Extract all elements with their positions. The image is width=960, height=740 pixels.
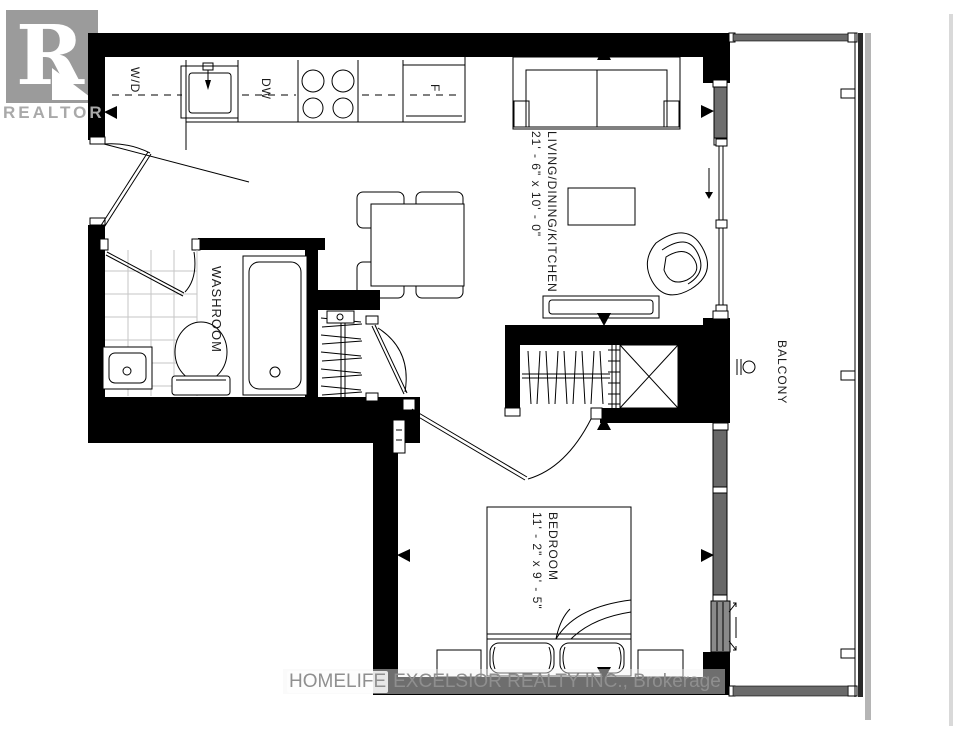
room-dimensions: 11' - 2" x 9' - 5" [529, 512, 545, 610]
balcony-bottom-rail [733, 686, 848, 696]
bathroom-sink [103, 347, 152, 389]
fridge [403, 65, 465, 122]
balcony-top-rail [733, 34, 848, 41]
floor-plan-image: R [0, 0, 960, 740]
room-name: BEDROOM [545, 512, 561, 610]
sofa [513, 57, 680, 129]
living-room-label: LIVING/DINING/KITCHEN 21' - 6" x 10' - 0… [528, 131, 560, 293]
entry-door [100, 144, 249, 229]
slide-direction-arrow-icon [705, 168, 713, 199]
dishwasher-label: DW [259, 78, 273, 100]
dining-set [357, 192, 464, 298]
bedroom-window-wall [713, 430, 727, 487]
washer-dryer-label: W/D [128, 67, 142, 93]
plumbing-line [608, 345, 620, 408]
mechanical-shaft [608, 345, 678, 408]
bedroom-closet [522, 351, 610, 404]
bedroom-window-wall [713, 493, 727, 595]
washroom-fixtures [103, 256, 307, 395]
brokerage-name-rest: EXCELSIOR REALTY INC., Brokerage [393, 671, 721, 693]
balcony-sliding-door [714, 87, 727, 138]
hose-bib-icon [737, 359, 755, 375]
kitchen [112, 57, 465, 150]
washroom-door [106, 252, 195, 296]
room-dimensions: 21' - 6" x 10' - 0" [528, 131, 544, 293]
linen-closet [321, 311, 407, 400]
balcony-right-rail [858, 33, 863, 697]
fridge-label: F [428, 84, 442, 92]
stove-burners [302, 70, 354, 118]
rail-bracket [841, 89, 855, 658]
washroom-label: WASHROOM [209, 266, 224, 353]
lounge-chair [647, 233, 707, 295]
coffee-table [568, 188, 635, 225]
realtor-wordmark: REALTOR [3, 103, 123, 123]
brokerage-watermark: HOMELIFE EXCELSIOR REALTY INC., Brokerag… [283, 669, 725, 694]
floor-plan-drawing [0, 0, 960, 740]
brokerage-name-prefix: HOMELIFE [287, 671, 388, 693]
room-name: LIVING/DINING/KITCHEN [544, 131, 560, 293]
balcony-label: BALCONY [775, 340, 789, 404]
balcony-structure [733, 33, 871, 720]
bedroom-label: BEDROOM 11' - 2" x 9' - 5" [529, 512, 561, 610]
bathtub [243, 256, 307, 395]
bedroom-door [410, 409, 591, 480]
balcony-rail-shadow [865, 33, 871, 720]
kitchen-sink [181, 63, 238, 118]
closet-door [372, 325, 407, 394]
operable-window [711, 601, 730, 652]
